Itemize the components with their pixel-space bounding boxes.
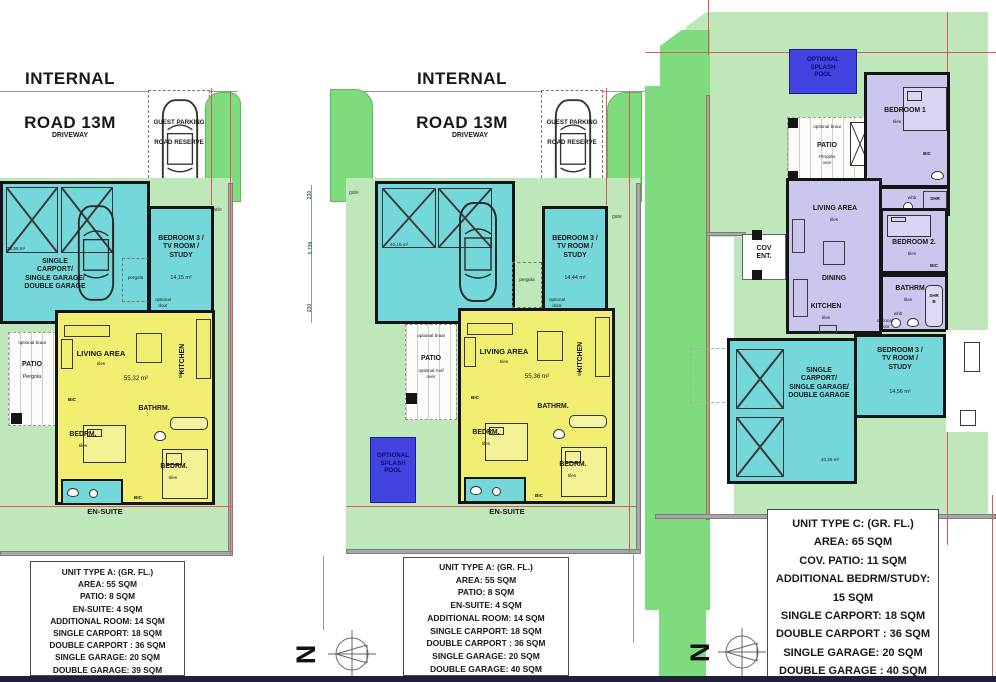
spec-line: UNIT TYPE A: (GR. FL.) [404,561,568,574]
optional-door-label: optional door [870,318,900,329]
bedroom1-label: BEDROOM 1 [867,107,943,115]
ensuite-label: EN-SUITE [60,507,150,516]
road-reserve-label: ROAD RESERVE [542,139,602,147]
bic-label: BIC [923,263,945,269]
toilet-icon [470,486,482,495]
spec-line: ADDITIONAL BEDRM/STUDY: 15 SQM [772,570,934,607]
stove-icon [819,325,837,334]
garage-door-hatch [382,188,436,248]
garage-area: 38,55 m² [7,246,47,252]
leader-line [633,549,634,643]
pergola-strip: pergola [122,258,149,302]
basin-icon [89,489,98,498]
guest-parking-label: GUEST PARKING [149,119,209,127]
tiles-label: tiles [877,119,917,125]
middle-patio: optional braai PATIO optional roof over [405,324,457,420]
tiles-label: tiles [473,441,499,447]
shr-label: SHR [925,196,945,202]
optional-door-label: optional door [147,297,179,308]
tiles-label: tiles [811,315,841,321]
hedge-strip [660,30,710,610]
garage-label: SINGLE CARPORT/ SINGLE GARAGE/ DOUBLE GA… [5,258,105,292]
spec-line: COV. PATIO: 11 SQM [772,552,934,570]
patio-sub-label: optional roof over [406,368,456,379]
ensuite-room [464,477,526,503]
dimension-text: 230 [307,298,313,318]
patio-label: PATIO [9,361,55,369]
middle-garage-room: 40,15 m² [375,181,515,324]
garage-area: 40,15 m² [390,242,434,248]
bathrm-label: BATHRM. [527,403,579,411]
hedge-strip [645,86,661,610]
pool-label: OPTIONAL SPLASH POOL [790,56,856,79]
bedrm-label: BEDRM. [549,461,597,469]
middle-unit: LIVING AREA tiles 55,36 m² KITCHEN tiles… [458,308,615,504]
garage-door-hatch [736,349,784,409]
compass-icon [326,628,378,680]
bedroom1-room: BEDROOM 1 tiles BIC [864,72,950,188]
sofa-icon [467,323,513,335]
boundary-line [211,88,212,205]
spec-line: UNIT TYPE A: (GR. FL.) [31,566,184,578]
pergola-post [406,393,417,404]
bedroom3-area: 14,44 m² [545,275,605,282]
toilet-icon [931,171,944,180]
bedrm-label: BEDRM. [150,463,198,471]
spec-line: DOUBLE CARPORT : 36 SQM [404,637,568,650]
spec-line: SINGLE GARAGE: 20 SQM [404,650,568,663]
bath-icon [569,415,607,428]
spec-line: DOUBLE CARPORT : 36 SQM [31,639,184,651]
bedrm-label: BEDRM. [463,429,509,437]
toilet-icon [67,488,79,497]
left-garage-room: 38,55 m² SINGLE CARPORT/ SINGLE GARAGE/ … [0,181,150,324]
gate-label: gate [612,214,622,220]
living-area-label: LIVING AREA [469,347,539,356]
dimension-text: 5.739 [308,235,314,261]
spec-line: PATIO: 8 SQM [404,586,568,599]
boundary-line [992,495,993,682]
patio-label: PATIO [406,355,456,363]
kitchen-counter-icon [196,319,211,379]
covered-entrance: COV ENT. [742,234,786,280]
spec-line: EN-SUITE: 4 SQM [31,603,184,615]
dining-label: DINING [803,275,865,283]
spec-line: AREA: 65 SQM [772,533,934,551]
right-bedroom3-room: BEDROOM 3 / TV ROOM / STUDY 14,56 m² [854,334,946,418]
road-reserve-label: ROAD RESERVE [149,139,209,147]
spec-line: SINGLE CARPORT: 18 SQM [772,607,934,625]
leader-line [323,556,324,630]
bed-icon [162,449,208,499]
table-icon [823,241,845,265]
boundary-wall [706,232,746,236]
kitchen-counter-icon [595,317,610,377]
unit-area: 55,32 m² [114,375,158,383]
bed-icon [561,447,607,497]
ensuite-label: EN-SUITE [462,507,552,516]
unit-area: 55,36 m² [515,373,559,381]
boundary-line [708,0,709,55]
ensuite-room [61,479,123,505]
living-area-label: LIVING AREA [797,205,873,213]
bathrm-label: BATHRM. [128,405,180,413]
window-icon [964,342,980,372]
toilet-icon [553,429,565,439]
patio-sub-label: Pergola [9,374,55,381]
middle-spec-box: UNIT TYPE A: (GR. FL.) AREA: 55 SQM PATI… [403,557,569,676]
bic-label: BIC [62,397,82,403]
tiles-label: tiles [86,361,116,367]
driveway-label: DRIVEWAY [38,132,102,140]
boundary-wall [0,551,233,556]
garage-door-hatch [6,187,58,253]
sofa-icon [792,219,805,253]
spec-line: ADDITIONAL ROOM: 14 SQM [31,615,184,627]
driveway-label: DRIVEWAY [438,132,502,140]
bedroom2-room: BEDROOM 2. tiles BIC [880,208,948,274]
bic-label: BIC [128,495,148,501]
compass-icon [716,626,768,678]
dimension-text: 230 [307,185,313,205]
basin-icon [492,487,501,496]
right-spec-box: UNIT TYPE C: (GR. FL.) AREA: 65 SQM COV.… [767,509,939,680]
guest-parking-label: GUEST PARKING [542,119,602,127]
table-icon [136,333,162,363]
carport-label: SINGLE CARPORT/ SINGLE GARAGE/ DOUBLE GA… [784,367,854,401]
bedroom3-label: BEDROOM 3 / TV ROOM / STUDY [863,347,937,372]
left-patio: optional braai PATIO Pergola [8,332,56,426]
pergola-post [788,118,798,128]
shr-label: SHR B [925,293,943,304]
bedroom3-area: 14,56 m² [871,389,929,396]
optional-door-label: optional door [541,297,573,308]
whb-label: whb [901,195,923,201]
kitchen-label: KITCHEN [795,303,857,311]
toilet-icon [907,318,919,327]
tiles-label: tiles [559,473,585,479]
toilet-icon [154,431,166,441]
pergola-post [11,413,22,424]
pool-label: OPTIONAL SPLASH POOL [371,452,415,475]
bedroom3-label: BEDROOM 3 / TV ROOM / STUDY [545,235,605,260]
car-icon [456,200,500,304]
tiles-label: tiles [489,359,519,365]
splash-pool: OPTIONAL SPLASH POOL [789,49,857,94]
north-arrow-label: N [683,639,716,665]
bath-icon [925,285,943,327]
sofa-icon [64,325,110,337]
spec-line: AREA: 55 SQM [404,574,568,587]
boundary-line [606,88,607,205]
bic-label: BIC [915,151,939,157]
door-icon [960,410,976,426]
whb-label: whb [887,311,909,317]
left-spec-box: UNIT TYPE A: (GR. FL.) AREA: 55 SQM PATI… [30,561,185,676]
spec-line: AREA: 55 SQM [31,578,184,590]
spec-line: SINGLE GARAGE: 20 SQM [31,651,184,663]
bic-label: BIC [529,493,549,499]
bedroom3-area: 14,15 m² [151,275,211,282]
tiles-label: tiles [160,475,186,481]
living-area-label: LIVING AREA [66,349,136,358]
splash-pool: OPTIONAL SPLASH POOL [370,437,416,503]
garage-door-hatch [736,417,784,477]
column [752,270,762,280]
spec-line: ADDITIONAL ROOM: 14 SQM [404,612,568,625]
spec-line: PATIO: 8 SQM [31,590,184,602]
living-kitchen-room: LIVING AREA tiles DINING KITCHEN tiles [786,178,882,334]
spec-line: DOUBLE GARAGE: 39 SQM [31,664,184,676]
spec-line: SINGLE CARPORT: 18 SQM [31,627,184,639]
porch [946,330,988,432]
bed-icon [887,215,931,237]
sheet-border [0,676,996,682]
pergola-label: pergola [513,277,541,283]
pergola-strip: pergola [512,262,542,308]
spec-line: DOUBLE CARPORT : 36 SQM [772,625,934,643]
tiles-label: tiles [897,251,927,257]
cov-ent-label: COV ENT. [743,245,785,262]
right-carport-room: SINGLE CARPORT/ SINGLE GARAGE/ DOUBLE GA… [727,338,857,484]
left-unit: LIVING AREA tiles 55,32 m² KITCHEN tiles… [55,310,215,505]
boundary-line [230,91,231,554]
spec-line: UNIT TYPE C: (GR. FL.) [772,515,934,533]
bic-label: BIC [465,395,485,401]
pergola-label: pergola [123,275,148,281]
tiles-label: tiles [70,443,96,449]
spec-line: EN-SUITE: 4 SQM [404,599,568,612]
bedrm-label: BEDRM. [60,431,106,439]
carport-area: 40,25 m² [808,457,852,463]
bath-icon [170,417,208,430]
column [752,230,762,240]
bedroom2-label: BEDROOM 2. [883,239,945,247]
tiles-label: tiles [178,359,184,389]
optional-braai-label: optional braai [9,340,55,346]
boundary-wall [636,183,641,553]
boundary-line [629,91,630,553]
floor-plan-sheet: INTERNAL ROAD 13M DRIVEWAY GUEST PARKING… [0,0,996,682]
spec-line: SINGLE CARPORT: 18 SQM [404,625,568,638]
optional-braai-label: optional braai [406,333,456,339]
spec-line: SINGLE GARAGE: 20 SQM [772,644,934,662]
tiles-label: tiles [577,357,583,387]
bedroom3-label: BEDROOM 3 / TV ROOM / STUDY [151,235,211,260]
spec-line: DOUBLE GARAGE: 40 SQM [404,663,568,676]
gate-label: gate [349,190,359,196]
tiles-label: tiles [819,217,849,223]
north-arrow-label: N [289,641,322,667]
table-icon [537,331,563,361]
tiles-label: tiles [893,297,923,303]
boundary-wall [346,549,641,554]
parking-outline [690,348,730,403]
